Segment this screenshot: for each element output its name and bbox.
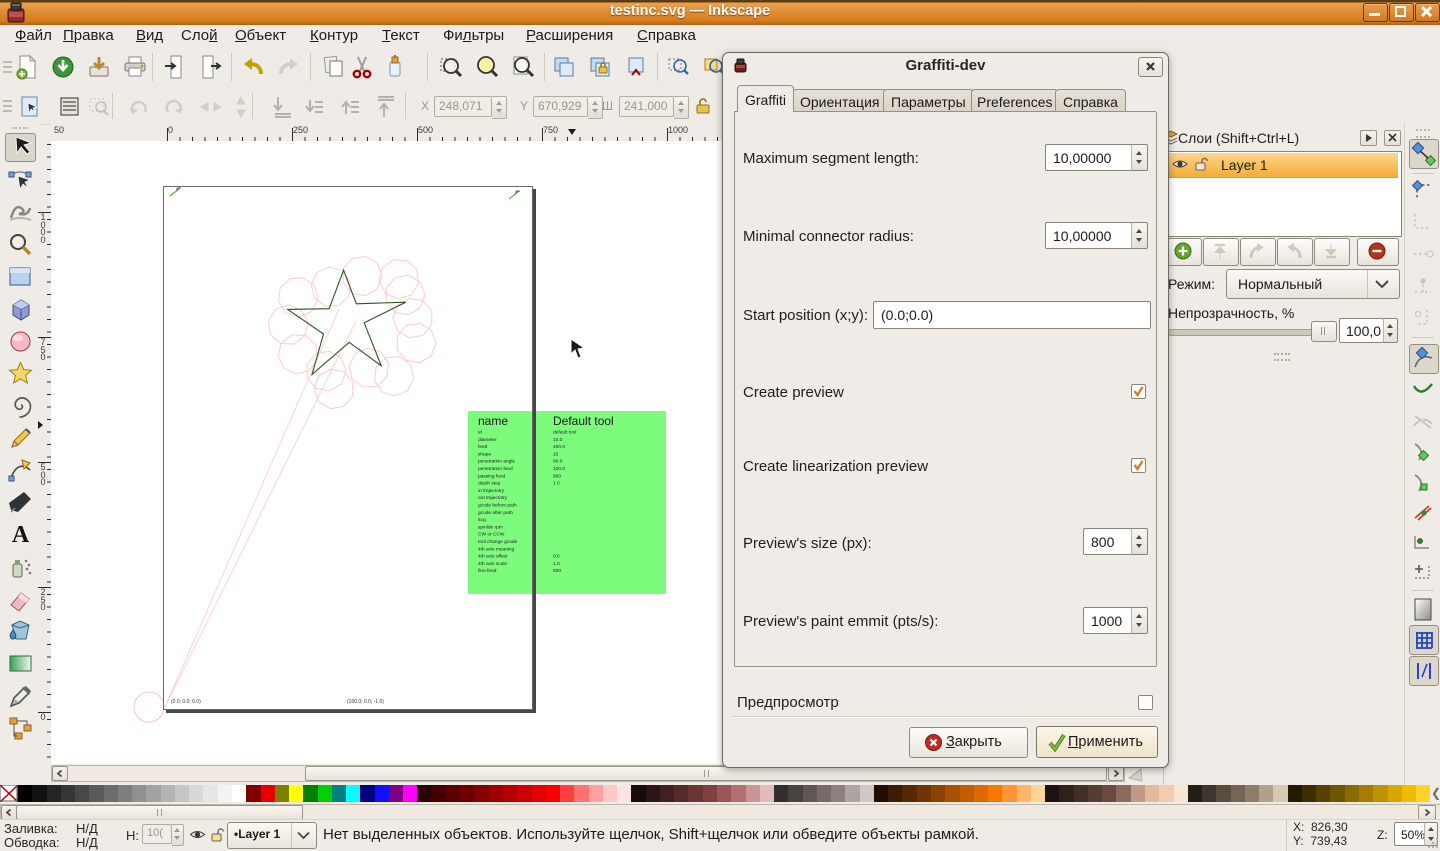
svg-text:Default tool: Default tool <box>553 414 614 428</box>
svg-text:10: 10 <box>553 451 559 457</box>
svg-text:default tool: default tool <box>553 430 576 436</box>
svg-text:1.0: 1.0 <box>553 561 560 567</box>
svg-text:90.0: 90.0 <box>553 459 563 465</box>
svg-text:10.0: 10.0 <box>553 437 563 443</box>
svg-text:800: 800 <box>553 568 561 574</box>
svg-text:800: 800 <box>553 473 561 479</box>
svg-text:0.0: 0.0 <box>553 554 560 560</box>
svg-text:1.0: 1.0 <box>553 481 560 487</box>
svg-text:A: A <box>12 522 30 547</box>
svg-text:100.0: 100.0 <box>553 466 565 472</box>
svg-text:400.0: 400.0 <box>553 444 565 450</box>
